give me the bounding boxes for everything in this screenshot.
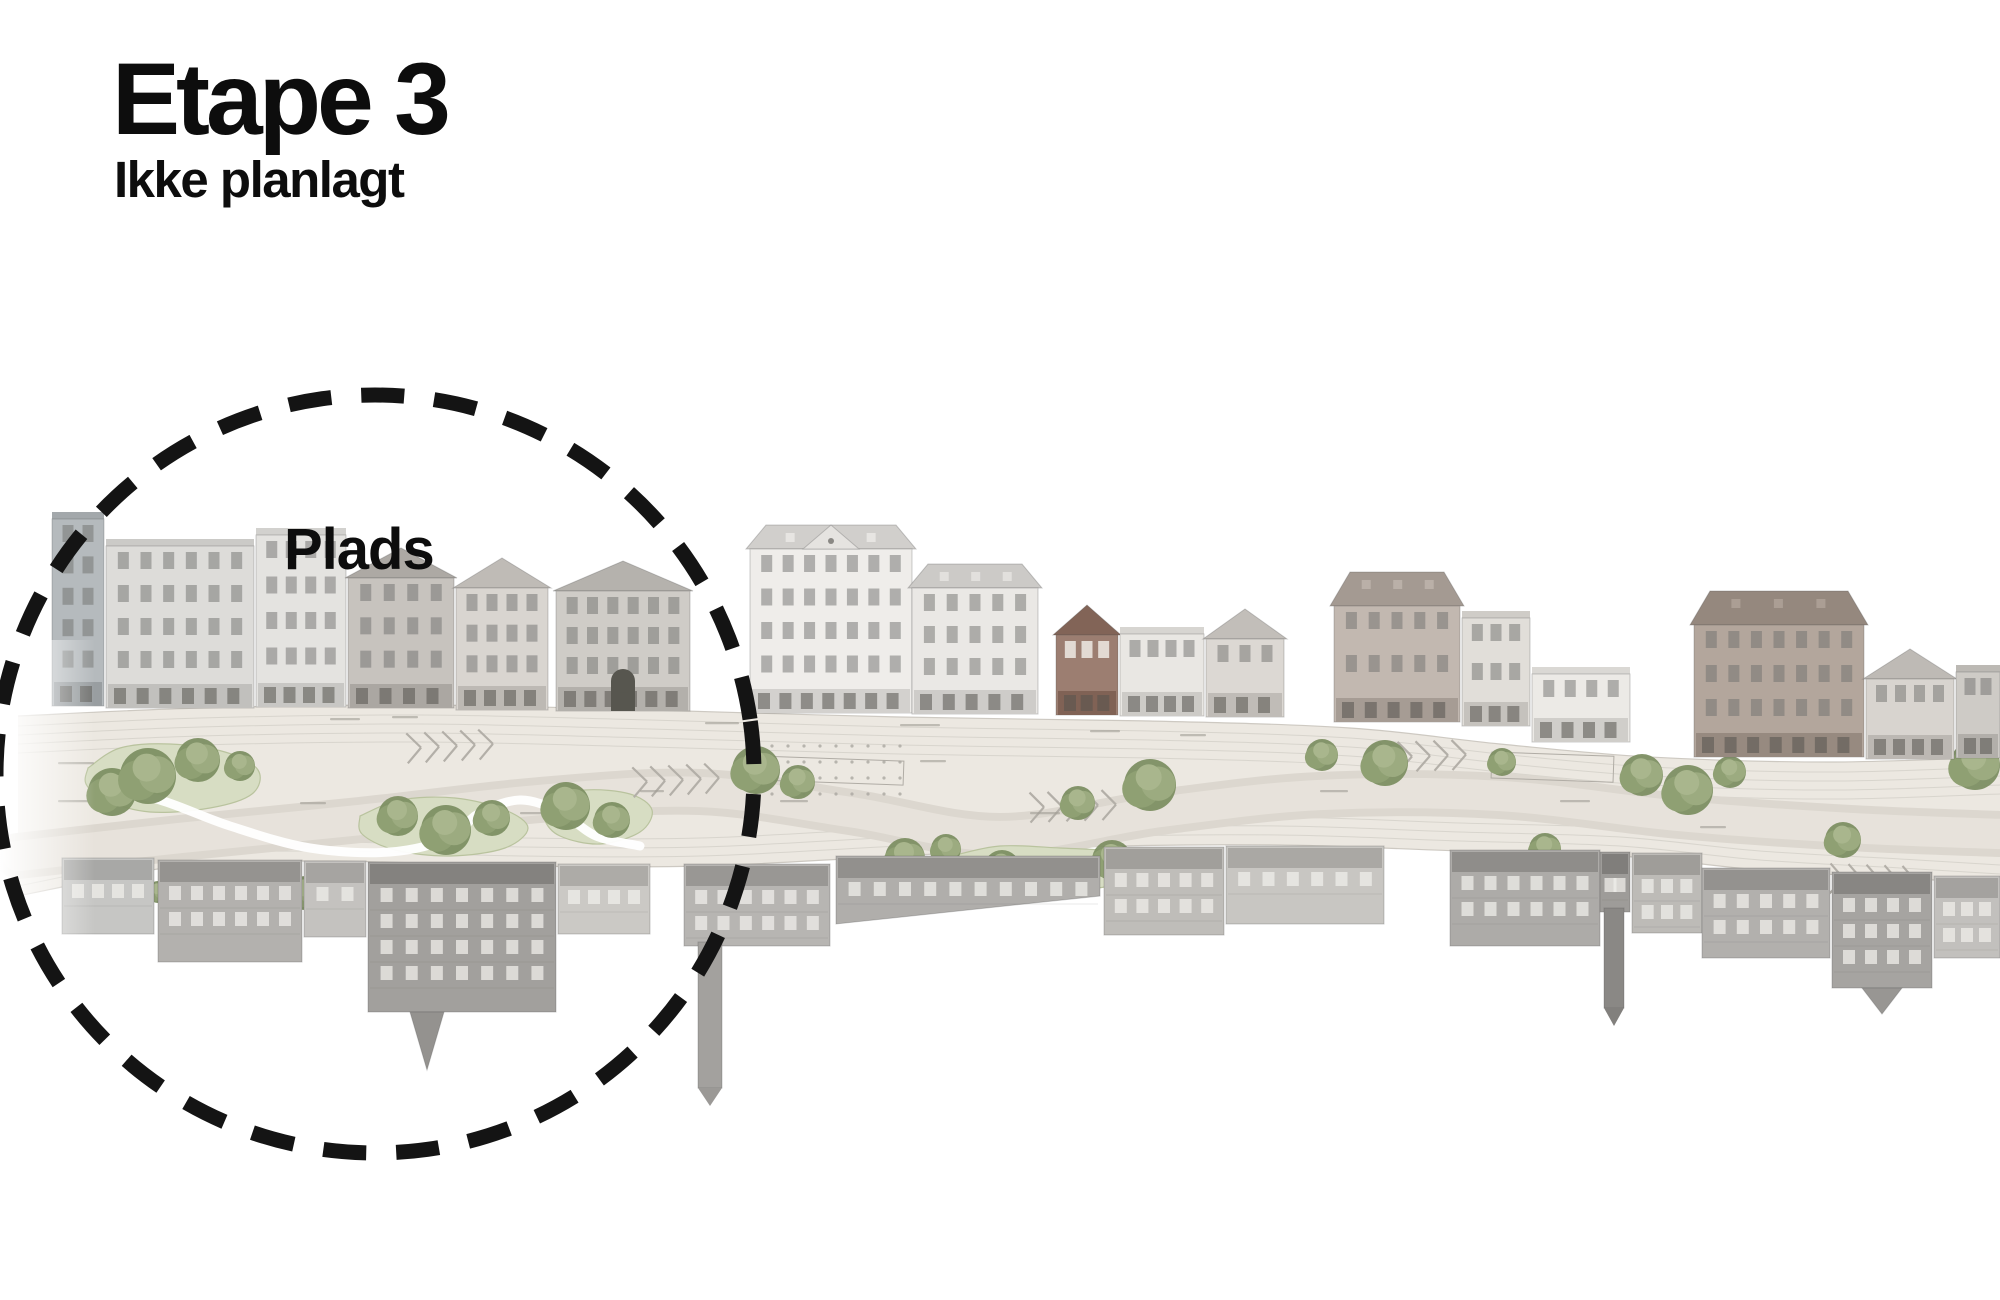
building-elevation-top — [1532, 667, 1630, 742]
headline-block: Etape 3 Ikke planlagt — [112, 48, 447, 205]
building-elevation-top — [908, 564, 1042, 714]
tiny-annotation-mark — [300, 802, 326, 804]
building-elevation-bottom-mirrored — [368, 862, 556, 1070]
building-elevation-bottom-mirrored — [1450, 850, 1600, 946]
building-elevation-top — [1203, 609, 1287, 717]
building-elevation-top — [1863, 649, 1957, 759]
building-elevation-top — [1462, 611, 1530, 726]
building-elevation-bottom-mirrored — [304, 861, 366, 937]
building-elevation-top — [1120, 627, 1204, 716]
tiny-annotation-mark — [780, 800, 808, 802]
tiny-annotation-mark — [900, 724, 940, 726]
tiny-annotation-mark — [1090, 730, 1120, 732]
plads-label: Plads — [284, 516, 434, 583]
tiny-annotation-mark — [1320, 790, 1348, 792]
building-elevation-top — [1053, 605, 1121, 715]
building-elevation-bottom-mirrored — [1702, 868, 1830, 958]
building-elevation-bottom-mirrored — [1832, 872, 1932, 1014]
building-elevation-top — [553, 561, 693, 711]
tiny-annotation-mark — [330, 718, 360, 720]
tiny-annotation-mark — [1700, 826, 1726, 828]
tiny-annotation-mark — [1180, 734, 1206, 736]
building-elevation-top — [1956, 665, 2000, 758]
building-elevation-bottom-mirrored — [836, 856, 1100, 924]
building-elevation-top — [453, 558, 551, 710]
building-elevation-top — [746, 525, 916, 713]
building-elevation-bottom-mirrored — [684, 864, 830, 1106]
tiny-annotation-mark — [1560, 800, 1590, 802]
tiny-annotation-mark — [920, 760, 946, 762]
building-elevation-bottom-mirrored — [1934, 876, 2000, 958]
building-elevation-bottom-mirrored — [558, 864, 650, 934]
building-elevation-bottom-mirrored — [1632, 853, 1702, 933]
building-elevation-bottom-mirrored — [1226, 846, 1384, 924]
building-elevation-top — [1690, 591, 1868, 757]
page: Etape 3 Ikke planlagt Plads — [0, 0, 2000, 1300]
building-elevation-bottom-mirrored — [158, 860, 302, 962]
building-elevation-bottom-mirrored — [1600, 852, 1630, 1026]
building-elevation-bottom-mirrored — [1104, 847, 1224, 935]
tiny-annotation-mark — [392, 716, 418, 718]
tiny-annotation-mark — [1030, 812, 1060, 814]
building-elevation-top — [106, 539, 254, 708]
page-title: Etape 3 — [112, 48, 447, 150]
tiny-annotation-mark — [640, 790, 664, 792]
building-elevation-top — [1330, 572, 1464, 722]
tiny-annotation-mark — [705, 722, 739, 724]
page-subtitle: Ikke planlagt — [114, 154, 447, 205]
